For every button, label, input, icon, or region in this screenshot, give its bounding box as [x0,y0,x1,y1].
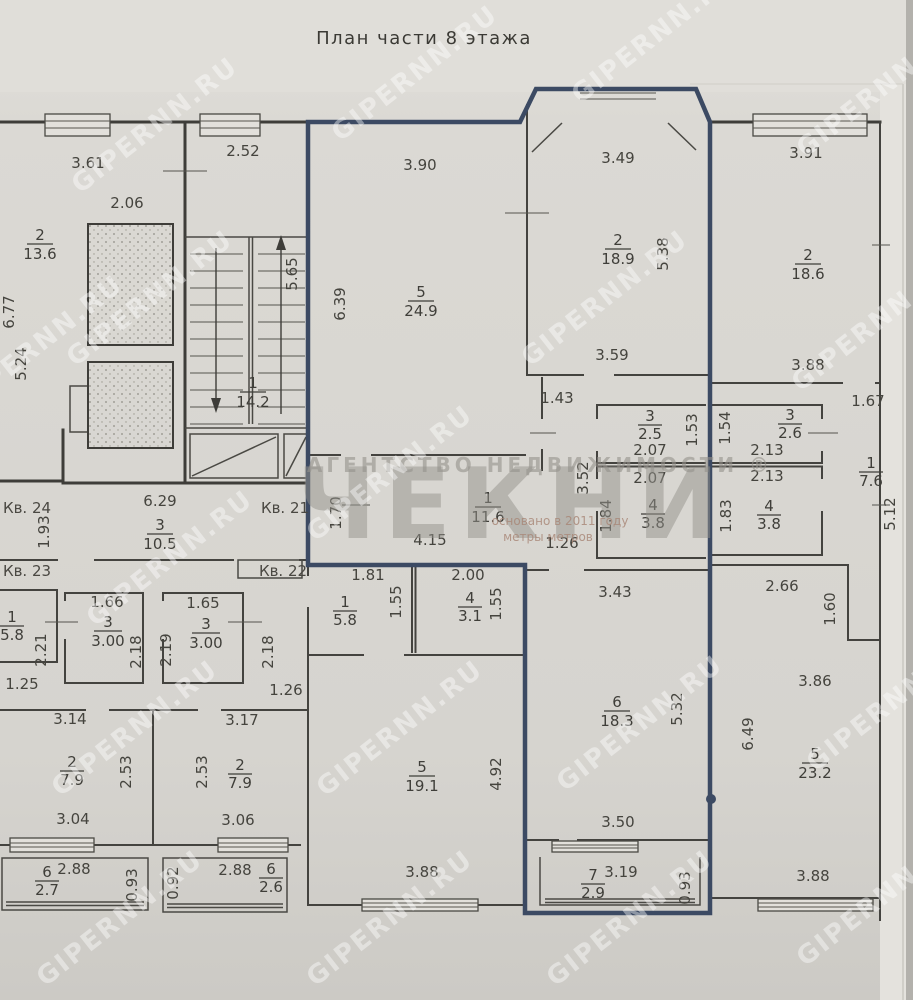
dim-label: 1.54 [716,411,734,444]
window-icon [10,838,94,852]
window-icon [552,841,638,852]
dim-label: 2.21 [32,633,50,666]
dim-label: 1.65 [186,594,219,612]
svg-text:3.1: 3.1 [458,607,482,625]
svg-text:14.2: 14.2 [236,393,269,411]
dim-label: 3.86 [798,672,831,690]
dim-label: 6.29 [143,492,176,510]
dim-label: 2.53 [193,755,211,788]
svg-text:3.8: 3.8 [757,515,781,533]
dim-label: 6.39 [331,287,349,320]
svg-text:6: 6 [612,693,622,711]
svg-text:1: 1 [340,593,350,611]
svg-text:3.00: 3.00 [91,632,124,650]
svg-text:3: 3 [155,516,165,534]
svg-text:7: 7 [588,866,598,884]
dim-label: 3.04 [56,810,89,828]
plan-title: План части 8 этажа [316,28,532,49]
dim-label: 5.65 [283,257,301,290]
window-icon [200,114,260,136]
dim-label: 5.12 [881,497,899,530]
dim-label: 3.17 [225,711,258,729]
svg-text:3: 3 [201,615,211,633]
dim-label: 2.88 [57,860,90,878]
flat-label: Кв. 23 [3,562,51,580]
svg-text:3: 3 [645,407,655,425]
svg-text:2: 2 [35,226,45,244]
dim-label: 1.55 [387,585,405,618]
floorplan-page: План части 8 этажа [0,0,913,1000]
svg-text:1: 1 [866,454,876,472]
dim-label: 2.88 [218,861,251,879]
dim-label: 3.49 [601,149,634,167]
svg-text:2: 2 [235,756,245,774]
svg-text:7.9: 7.9 [228,774,252,792]
flat-label: Кв. 22 [259,562,307,580]
dim-label: 1.26 [269,681,302,699]
svg-text:2.7: 2.7 [35,881,59,899]
agency-sub1-text: основано в 2011 году [492,514,629,528]
dim-label: 3.19 [604,863,637,881]
dim-label: 3.43 [598,583,631,601]
dim-label: 2.00 [451,566,484,584]
agency-sub2-text: метры метров [503,530,593,544]
svg-text:6: 6 [266,860,276,878]
svg-text:1: 1 [248,374,258,392]
svg-text:4: 4 [764,497,774,515]
window-icon [45,114,110,136]
dim-label: 2.06 [110,194,143,212]
window-icon [218,838,288,852]
dim-label: 1.93 [35,515,53,548]
svg-text:2: 2 [803,246,813,264]
dim-label: 3.90 [403,156,436,174]
dim-label: 3.50 [601,813,634,831]
svg-text:4: 4 [465,589,475,607]
dim-label: 2.18 [127,635,145,668]
svg-text:3.00: 3.00 [189,634,222,652]
dim-label: 6.49 [739,717,757,750]
svg-text:5.8: 5.8 [333,611,357,629]
dim-label: 1.67 [851,392,884,410]
dim-label: 2.66 [765,577,798,595]
dim-label: 3.88 [796,867,829,885]
svg-text:5: 5 [417,758,427,776]
svg-text:2.5: 2.5 [638,425,662,443]
svg-text:7.6: 7.6 [859,472,883,490]
svg-text:6: 6 [42,863,52,881]
dim-label: 2.18 [259,635,277,668]
floorplan-svg: План части 8 этажа [0,0,913,1000]
dim-label: 1.60 [821,592,839,625]
dim-label: 3.14 [53,710,86,728]
svg-text:2: 2 [613,231,623,249]
unit-outline-dot [706,794,716,804]
svg-text:1: 1 [7,608,17,626]
flat-label: Кв. 24 [3,499,51,517]
dim-label: 1.55 [487,587,505,620]
dim-label: 1.53 [683,413,701,446]
dim-label: 6.77 [0,295,18,328]
dim-label: 4.92 [487,757,505,790]
dim-label: 2.53 [117,755,135,788]
svg-text:18.6: 18.6 [791,265,824,283]
dim-label: 1.43 [540,389,573,407]
dim-label: 3.59 [595,346,628,364]
svg-text:2.6: 2.6 [778,424,802,442]
svg-text:5: 5 [416,283,426,301]
dim-label: 1.25 [5,675,38,693]
dim-label: 3.06 [221,811,254,829]
dim-label: 2.19 [157,633,175,666]
dim-label: 1.81 [351,566,384,584]
svg-text:13.6: 13.6 [23,245,56,263]
svg-text:2.6: 2.6 [259,878,283,896]
svg-text:24.9: 24.9 [404,302,437,320]
svg-text:3: 3 [785,406,795,424]
svg-text:19.1: 19.1 [405,777,438,795]
dim-label: 2.52 [226,142,259,160]
svg-text:2.9: 2.9 [581,884,605,902]
svg-text:5.8: 5.8 [0,626,24,644]
